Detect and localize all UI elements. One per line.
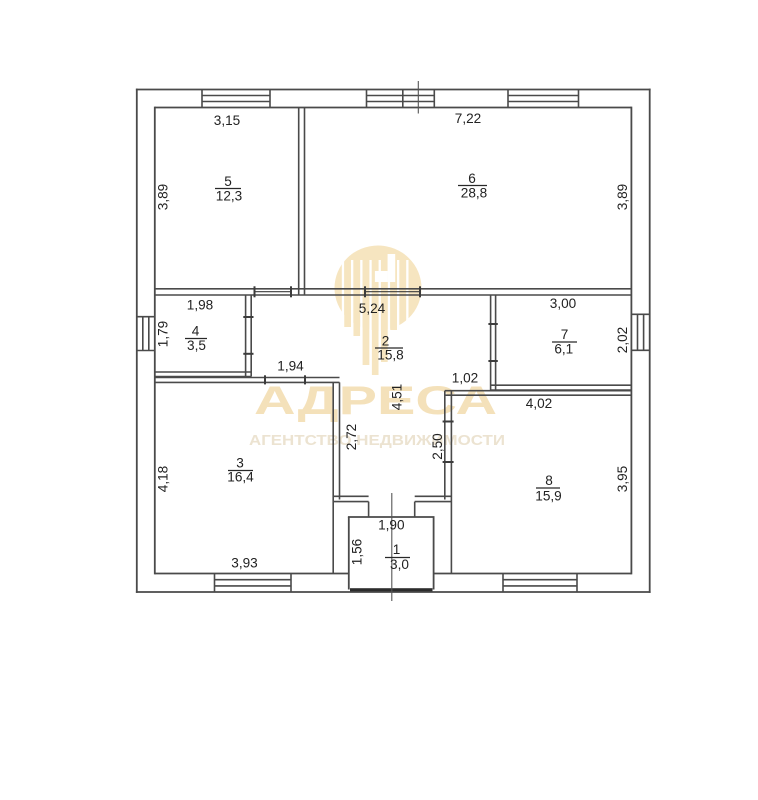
svg-text:3,89: 3,89: [156, 184, 171, 210]
svg-text:1,98: 1,98: [187, 298, 213, 313]
svg-text:12,3: 12,3: [216, 189, 242, 204]
svg-text:4: 4: [192, 324, 200, 339]
svg-text:АДРЕСА: АДРЕСА: [254, 379, 497, 423]
svg-text:1,02: 1,02: [452, 371, 478, 386]
svg-text:15,9: 15,9: [535, 489, 561, 504]
svg-text:АГЕНТСТВО НЕДВИЖИМОСТИ: АГЕНТСТВО НЕДВИЖИМОСТИ: [249, 433, 505, 449]
svg-text:3,15: 3,15: [214, 113, 240, 128]
svg-text:1,79: 1,79: [156, 321, 171, 347]
svg-text:7,22: 7,22: [455, 111, 481, 126]
svg-text:28,8: 28,8: [461, 186, 487, 201]
svg-text:3,93: 3,93: [231, 556, 257, 571]
svg-text:2,02: 2,02: [615, 327, 630, 353]
svg-text:3,00: 3,00: [550, 296, 577, 311]
svg-text:1,56: 1,56: [350, 539, 365, 565]
svg-text:6: 6: [468, 171, 476, 186]
svg-text:2,50: 2,50: [430, 433, 445, 460]
svg-text:15,8: 15,8: [377, 348, 403, 363]
svg-text:16,4: 16,4: [227, 470, 254, 485]
svg-text:2: 2: [382, 334, 390, 349]
svg-text:8: 8: [545, 473, 553, 488]
svg-text:4,18: 4,18: [156, 466, 171, 492]
svg-text:5,24: 5,24: [359, 301, 386, 316]
svg-text:3,89: 3,89: [615, 184, 630, 210]
svg-text:1,94: 1,94: [277, 359, 304, 374]
svg-text:5: 5: [224, 174, 232, 189]
svg-text:7: 7: [561, 327, 569, 342]
svg-text:3: 3: [236, 456, 244, 471]
svg-text:1: 1: [393, 542, 401, 557]
svg-text:3,0: 3,0: [390, 557, 409, 572]
svg-text:6,1: 6,1: [554, 342, 573, 357]
svg-text:3,95: 3,95: [615, 466, 630, 492]
svg-text:1,90: 1,90: [378, 518, 405, 533]
svg-text:3,5: 3,5: [187, 338, 206, 353]
svg-text:4,02: 4,02: [526, 396, 552, 411]
svg-text:4,51: 4,51: [390, 384, 405, 410]
svg-text:2,72: 2,72: [344, 424, 359, 450]
